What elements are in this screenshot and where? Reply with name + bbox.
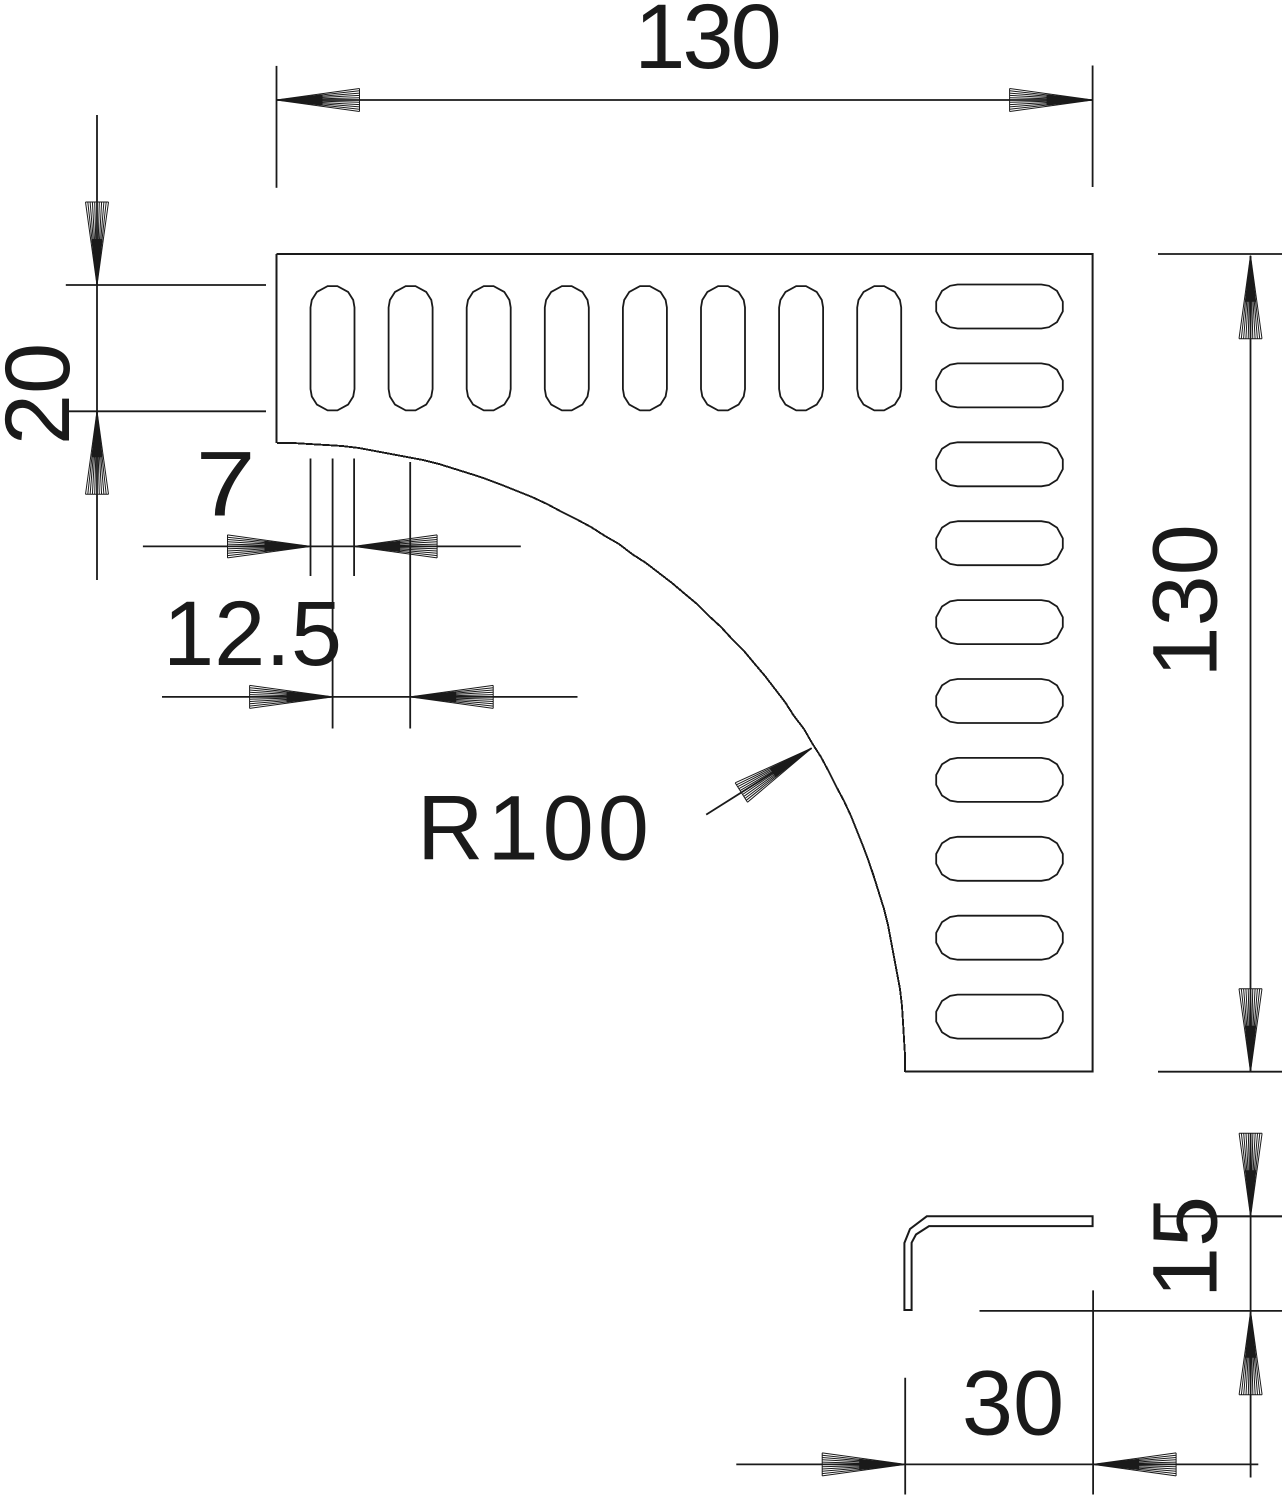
svg-text:30: 30 (962, 1352, 1064, 1454)
svg-text:7: 7 (196, 434, 256, 536)
svg-text:130: 130 (634, 0, 779, 88)
svg-text:130: 130 (1135, 524, 1237, 678)
svg-text:12.5: 12.5 (163, 583, 342, 685)
svg-text:15: 15 (1135, 1196, 1237, 1298)
svg-text:R100: R100 (417, 777, 653, 879)
svg-text:20: 20 (0, 343, 89, 445)
